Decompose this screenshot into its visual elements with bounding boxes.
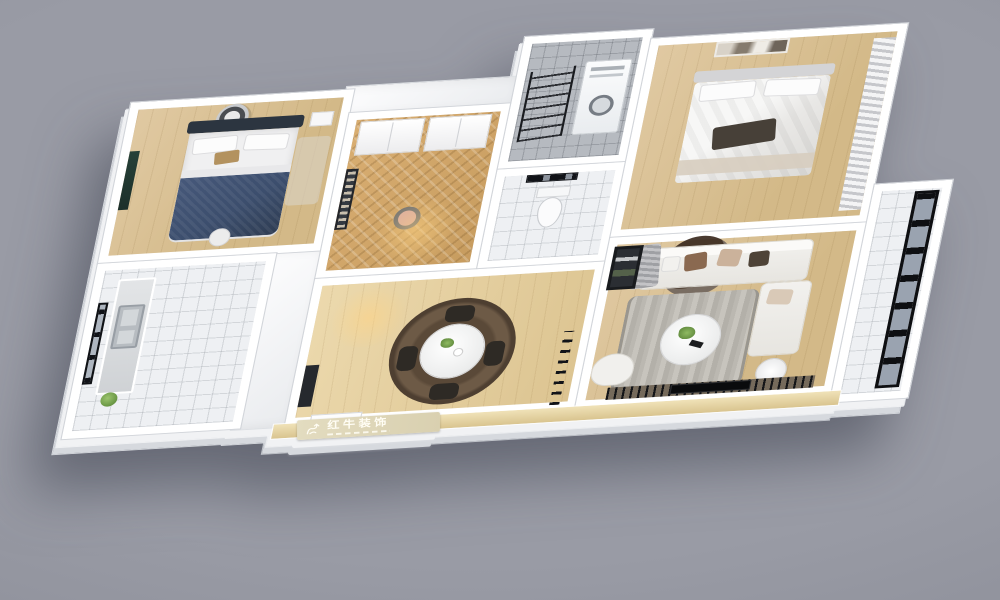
watermark-text-block: 红牛装饰 xyxy=(327,418,390,436)
apartment-3d-plan: 红牛装饰 xyxy=(58,9,988,458)
book xyxy=(689,340,704,349)
floorplan-render-stage: 红牛装饰 xyxy=(0,0,1000,600)
wardrobe-cabinet xyxy=(423,114,493,152)
tile-floor xyxy=(72,261,266,431)
room-hallway-dining xyxy=(285,261,606,425)
plant xyxy=(677,326,696,339)
pillow xyxy=(762,78,822,97)
tv xyxy=(671,381,751,393)
wardrobe-cabinet xyxy=(354,118,426,156)
sink-basin xyxy=(120,309,139,326)
toilet-bowl xyxy=(534,196,565,228)
washer-panel xyxy=(591,65,625,71)
washer-door xyxy=(587,94,616,116)
pillow xyxy=(242,133,290,151)
room-bedroom-2 xyxy=(98,89,355,264)
sink-basin xyxy=(116,330,134,344)
cup xyxy=(454,349,463,356)
nightstand xyxy=(309,111,334,127)
bull-logo-icon xyxy=(305,422,322,437)
master-bed xyxy=(672,63,836,183)
room-wc xyxy=(477,162,626,269)
room-master-bedroom xyxy=(610,23,908,238)
washer-panel xyxy=(589,73,623,78)
table-plant xyxy=(440,338,455,348)
throw-pillow xyxy=(765,289,794,305)
room-living xyxy=(575,222,867,408)
plan-shadow-wrapper: 红牛装饰 xyxy=(0,0,1000,600)
